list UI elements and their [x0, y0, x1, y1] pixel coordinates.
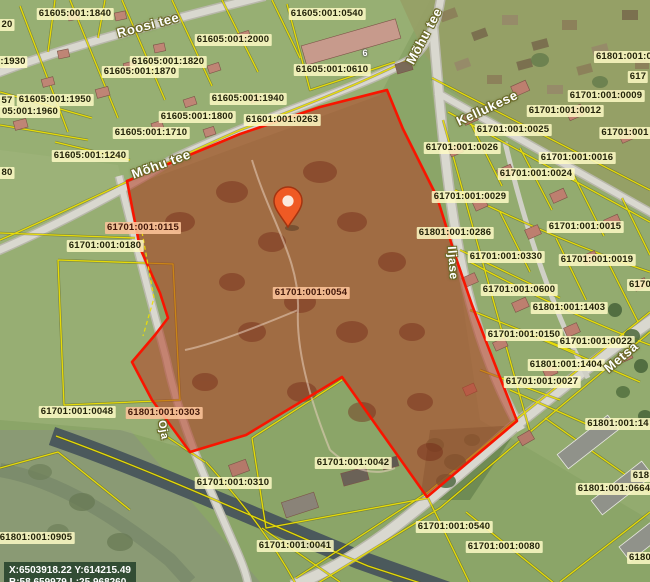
coordinates-readout: X:6503918.22 Y:614215.49 B:58.659979 L:2… — [4, 562, 136, 582]
parcel-label: 61701:001:0009 — [568, 90, 645, 102]
parcel-label: 61605:001:1800 — [159, 111, 236, 123]
street-label: Kellukese — [454, 87, 520, 129]
parcel-label: 61701:001:0042 — [315, 457, 392, 469]
parcel-label: 61701:001:0041 — [257, 540, 334, 552]
parcel-label: 61801:001:0 — [594, 51, 650, 63]
parcel-label: :1930 — [0, 56, 28, 68]
parcel-label: 61701:001:0024 — [498, 168, 575, 180]
parcel-label: 61605:001:1950 — [17, 94, 94, 106]
street-label: Oja — [155, 419, 170, 440]
parcel-label: 61605:001:0540 — [289, 8, 366, 20]
parcel-label: 6180 — [627, 552, 650, 564]
parcel-label: 61801:001:1403 — [531, 302, 608, 314]
parcel-label: 20 — [0, 19, 14, 31]
parcel-label: 618 — [631, 470, 650, 482]
pin-body — [274, 187, 302, 227]
parcel-label: 61605:001:2000 — [195, 34, 272, 46]
map-viewport[interactable]: 61605:001:184061605:001:200061605:001:18… — [0, 0, 650, 582]
parcel-label: 61701:001:0019 — [559, 254, 636, 266]
pin-hole — [282, 195, 293, 206]
parcel-label: 61605:001:0610 — [294, 64, 371, 76]
parcel-label: 61801:001:1404 — [528, 359, 605, 371]
parcel-label: 61701:001:0029 — [432, 191, 509, 203]
building-number-label: 6 — [362, 48, 367, 58]
parcel-label: 61701:001:0026 — [424, 142, 501, 154]
parcel-label: 61701:001:0027 — [504, 376, 581, 388]
parcel-label: 61701:001:0012 — [527, 105, 604, 117]
parcel-label: 61605:001:1840 — [37, 8, 114, 20]
parcel-label: 61701:001:0180 — [67, 240, 144, 252]
parcel-label: 61701:001:0150 — [486, 329, 563, 341]
parcel-label: 61605:001:1940 — [210, 93, 287, 105]
parcel-label: 61701:001:0015 — [547, 221, 624, 233]
map-labels-layer: 61605:001:184061605:001:200061605:001:18… — [0, 0, 650, 582]
parcel-label: 61605:001:1710 — [113, 127, 190, 139]
street-label: Mõhu tee — [129, 146, 192, 181]
parcel-label: 617 — [628, 71, 648, 83]
parcel-label: 61701:001:0080 — [466, 541, 543, 553]
parcel-label: 61801:001:0303 — [126, 407, 203, 419]
parcel-label: 61801:001:0664 — [576, 483, 650, 495]
parcel-label: 61701:001:0330 — [468, 251, 545, 263]
street-label: Roosi tee — [115, 9, 181, 40]
parcel-label: 61701:001:0016 — [539, 152, 616, 164]
parcel-label: 61701:001 — [599, 127, 650, 139]
coordinates-xy: X:6503918.22 Y:614215.49 — [9, 565, 131, 577]
parcel-label: 61701:001:0540 — [416, 521, 493, 533]
parcel-label: 61601:001:0263 — [244, 114, 321, 126]
parcel-label: 61605:001:1870 — [102, 66, 179, 78]
street-label: Mõhu tee — [403, 5, 445, 67]
location-pin-icon[interactable] — [265, 182, 311, 234]
street-label: Iljase — [445, 246, 461, 281]
parcel-label: 61605:001:1240 — [52, 150, 129, 162]
parcel-label: 61801:001:0286 — [417, 227, 494, 239]
parcel-label: 61701:001:0054 — [273, 287, 350, 299]
parcel-label: 61801:001:0905 — [0, 532, 74, 544]
parcel-label: 61801:001:14 — [585, 418, 650, 430]
parcel-label: 05:001:1960 — [0, 106, 60, 118]
parcel-label: 6170 — [627, 279, 650, 291]
parcel-label: 61701:001:0310 — [195, 477, 272, 489]
parcel-label: 61701:001:0025 — [475, 124, 552, 136]
coordinates-bl: B:58.659979 L:25.968260 — [9, 577, 131, 582]
parcel-label: 61701:001:0048 — [39, 406, 116, 418]
parcel-label: 61701:001:0600 — [481, 284, 558, 296]
parcel-label: 61701:001:0115 — [105, 222, 181, 234]
parcel-label: 80 — [0, 167, 14, 179]
